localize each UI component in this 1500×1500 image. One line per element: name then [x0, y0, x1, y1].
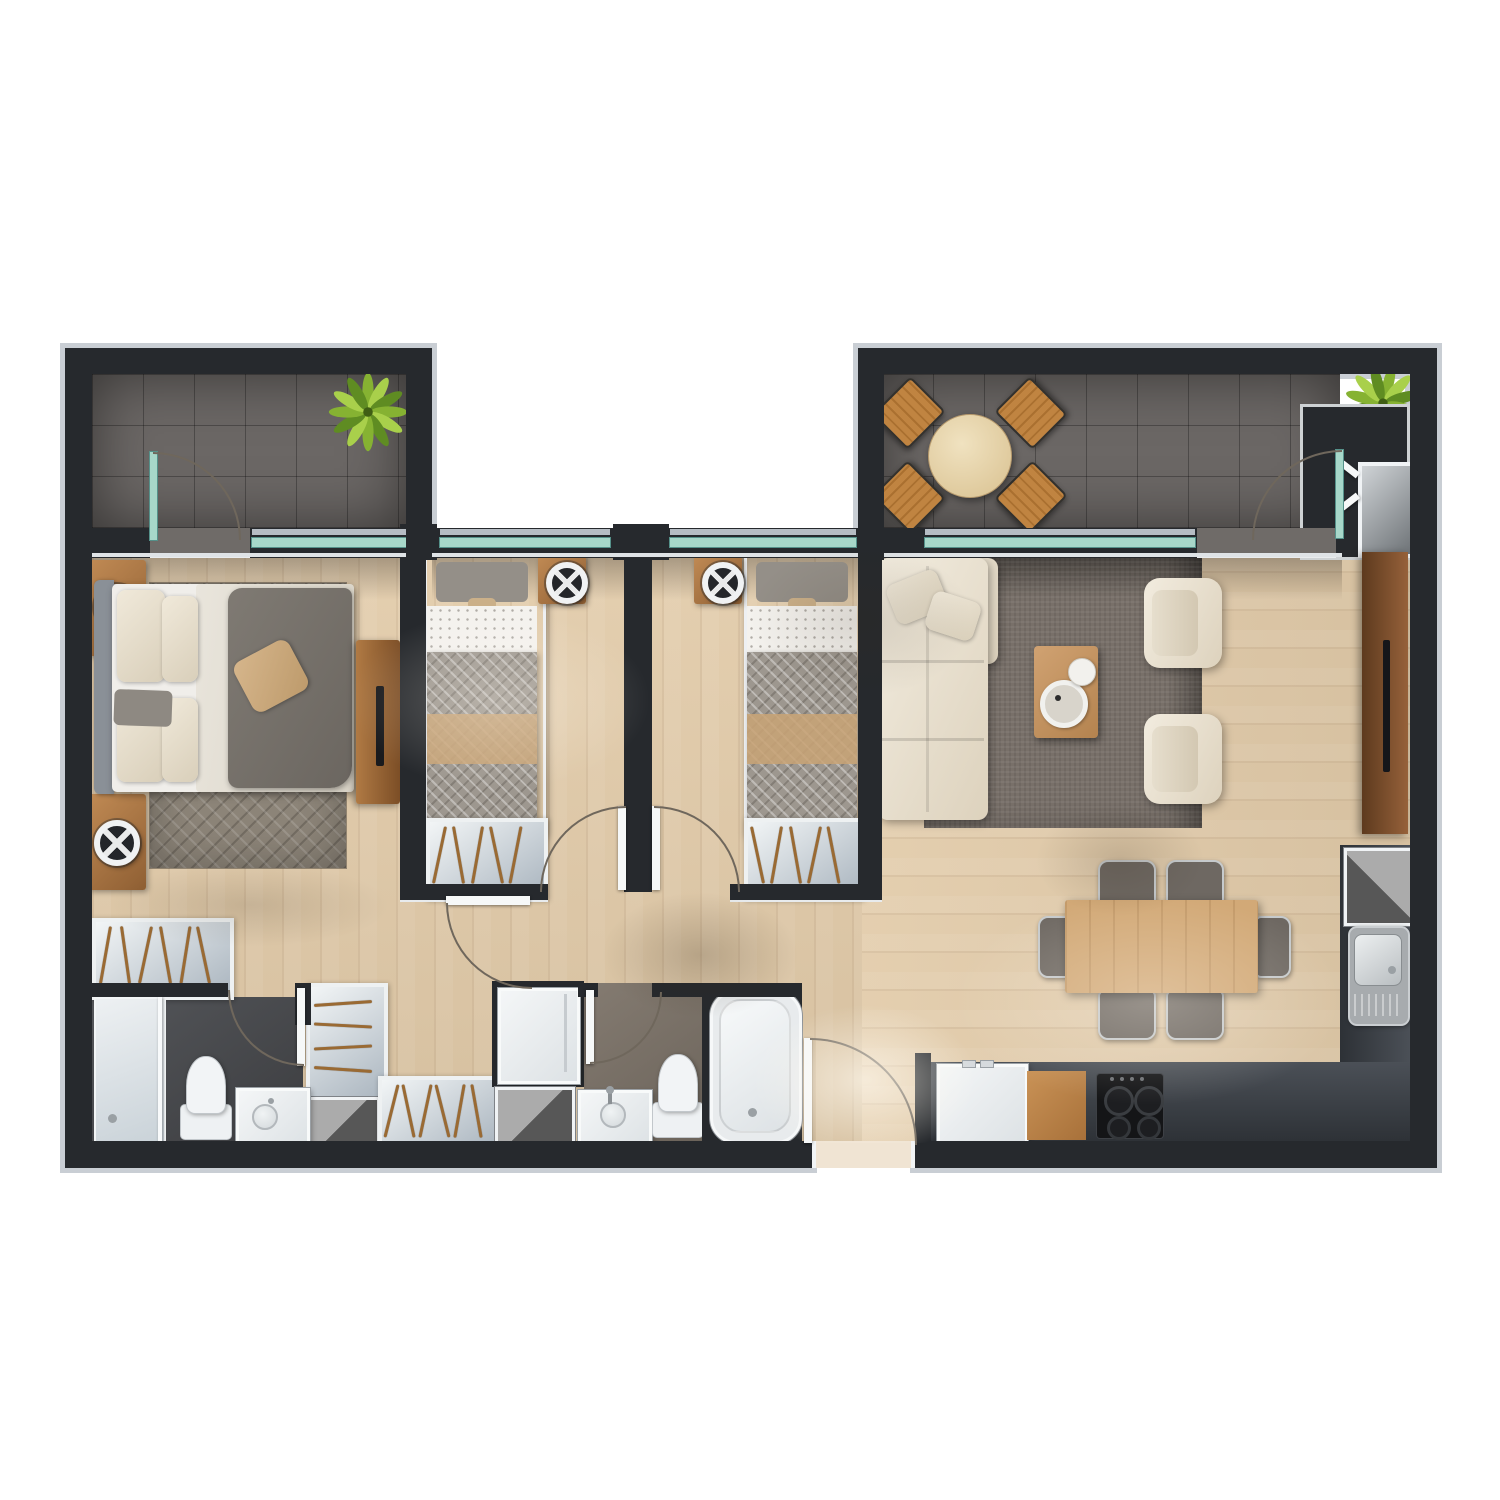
exterior-wall	[65, 348, 92, 1168]
bedroom-partition-wall	[624, 556, 652, 892]
balcony-door-leaf	[150, 452, 157, 540]
cushion-seam	[882, 738, 984, 741]
bed-pillow	[117, 590, 165, 682]
window-sill	[252, 529, 406, 535]
floor-plan	[0, 0, 1500, 1500]
burner	[1107, 1116, 1131, 1140]
washer-door-seam	[564, 994, 567, 1072]
dining-chair	[1255, 916, 1291, 978]
exterior-wall	[915, 1141, 1437, 1168]
fridge-handle	[980, 1060, 994, 1068]
window-sill	[925, 529, 1195, 535]
bathroom-wall	[92, 983, 228, 997]
armchair	[1144, 714, 1222, 804]
outdoor-table	[928, 414, 1012, 498]
faucet	[268, 1098, 274, 1104]
exterior-wall	[858, 348, 884, 560]
bed-pillow	[756, 562, 848, 602]
cushion-seam	[882, 660, 984, 663]
service-shaft	[495, 1087, 575, 1149]
wall-baseline	[882, 553, 1342, 557]
exterior-wall	[406, 348, 432, 560]
window	[670, 538, 856, 547]
dining-chair	[1166, 990, 1224, 1040]
table-lamp	[546, 562, 588, 604]
exterior-wall	[1410, 348, 1437, 1168]
shower-glass	[158, 997, 162, 1143]
armchair-seat	[1152, 590, 1198, 656]
dining-chair	[1098, 990, 1156, 1040]
balcony-door-leaf	[1336, 450, 1343, 538]
service-shaft	[1344, 848, 1414, 926]
tub-drain	[748, 1108, 757, 1117]
water-heater-unit	[1358, 462, 1414, 558]
exterior-wall	[65, 348, 432, 374]
toilet	[186, 1056, 226, 1114]
burner	[1134, 1086, 1164, 1116]
decor-bowl	[1068, 658, 1096, 686]
dining-table	[1065, 900, 1258, 993]
cooktop-knob	[1110, 1077, 1114, 1081]
wall-baseline	[92, 553, 410, 557]
decor-tray	[1040, 680, 1088, 728]
wall-baseline	[432, 553, 862, 557]
ensuite-door-leaf	[297, 988, 305, 1066]
bedroom3-bottom-wall	[730, 884, 882, 900]
faucet	[1388, 966, 1396, 974]
tray-dot	[1055, 695, 1061, 701]
table-lamp	[702, 562, 744, 604]
cutting-board	[1027, 1071, 1086, 1140]
armchair	[1144, 578, 1222, 668]
sink-basin	[252, 1104, 278, 1130]
potted-plant	[328, 372, 408, 452]
window-sill	[670, 529, 856, 535]
sink-basin	[600, 1102, 626, 1128]
fridge-handle	[962, 1060, 976, 1068]
walk-in-shower	[94, 997, 166, 1143]
window-sill	[440, 529, 610, 535]
washing-machine	[498, 988, 580, 1084]
bed-throw-fold	[113, 689, 172, 727]
toilet	[658, 1054, 698, 1112]
tv	[1383, 640, 1390, 772]
entry-threshold	[812, 1141, 915, 1168]
kitchen-stub-wall	[915, 1053, 931, 1143]
burner	[1137, 1116, 1161, 1140]
bed-sheet	[427, 606, 537, 652]
bedroom2-door-leaf	[618, 806, 626, 890]
bed-headboard	[94, 580, 114, 794]
burner	[1104, 1086, 1134, 1116]
cooktop-knob	[1140, 1077, 1144, 1081]
window	[925, 538, 1195, 547]
bed-pillow	[162, 596, 198, 682]
cooktop-knob	[1120, 1077, 1124, 1081]
sink-basin	[1354, 934, 1402, 986]
cooktop-knob	[1130, 1077, 1134, 1081]
tv	[376, 686, 384, 766]
window	[440, 538, 610, 547]
exterior-wall	[65, 1141, 812, 1168]
sink-drainboard	[1354, 994, 1400, 1016]
master-door-leaf	[446, 896, 530, 905]
bathroom-wall	[652, 983, 802, 997]
exterior-wall	[858, 348, 1437, 374]
entry-door-leaf	[804, 1038, 812, 1143]
faucet	[606, 1086, 614, 1094]
duvet-band	[427, 714, 537, 764]
shower-drain	[108, 1114, 117, 1123]
living-partition-wall	[858, 556, 882, 898]
refrigerator	[937, 1064, 1028, 1145]
window	[252, 538, 406, 547]
bed-sheet	[747, 606, 857, 652]
master-partition-wall	[400, 556, 426, 902]
duvet-band	[747, 714, 857, 764]
bedroom3-door-leaf	[652, 806, 660, 890]
bed-pillow	[436, 562, 528, 602]
bathroom2-door-leaf	[586, 990, 594, 1064]
table-lamp	[94, 820, 140, 866]
armchair-seat	[1152, 726, 1198, 792]
